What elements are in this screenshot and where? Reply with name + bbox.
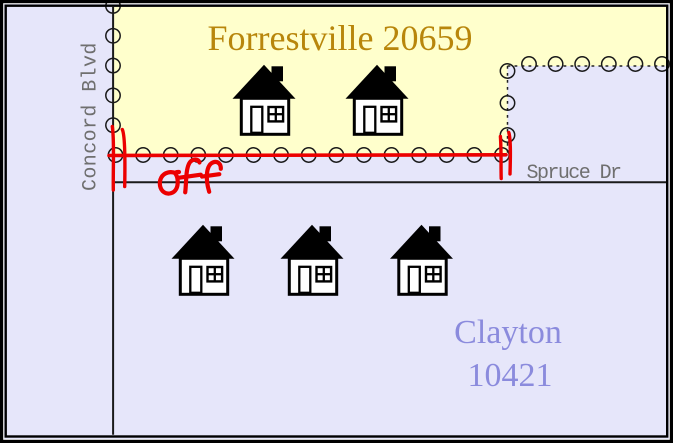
svg-text:Forrestville 20659: Forrestville 20659 (208, 18, 473, 58)
svg-text:Concord Blvd: Concord Blvd (80, 42, 103, 191)
svg-text:10421: 10421 (468, 357, 553, 394)
svg-text:Spruce Dr: Spruce Dr (527, 162, 622, 185)
svg-text:Clayton: Clayton (454, 314, 562, 351)
